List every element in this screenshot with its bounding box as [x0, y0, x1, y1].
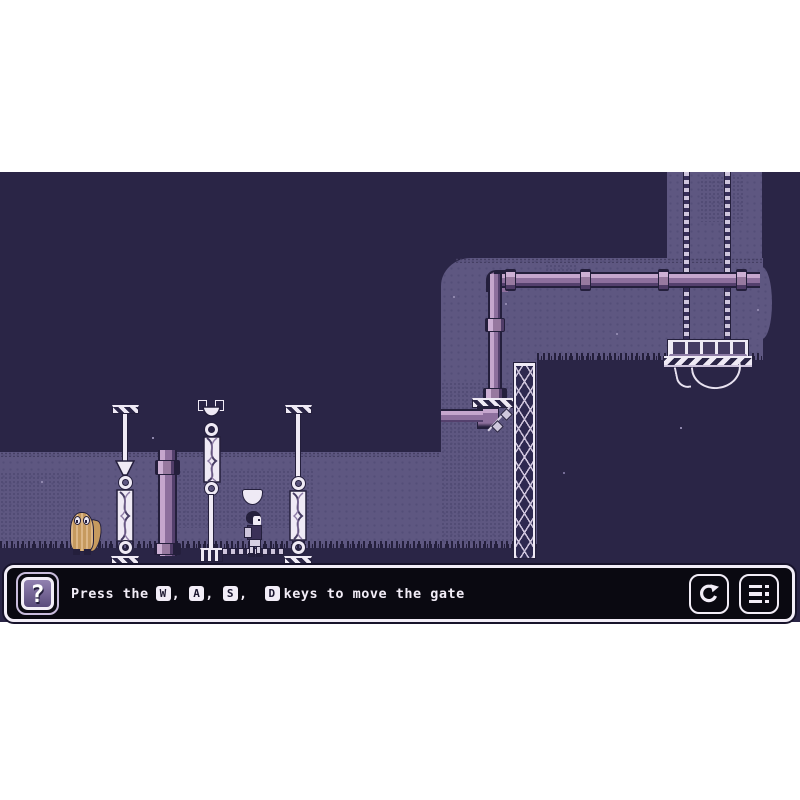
key-badge-a: A	[189, 586, 204, 601]
creature-character	[66, 506, 102, 558]
menu-list-icon	[749, 585, 769, 604]
question-glyph: ?	[30, 580, 44, 608]
comma: ,	[239, 586, 248, 602]
pipe-vertical-main	[488, 274, 502, 390]
chain-left	[684, 172, 689, 344]
pillar3-cap	[285, 405, 312, 414]
pipe-coupling	[580, 269, 591, 291]
speck	[563, 472, 565, 474]
restart-icon	[697, 582, 721, 606]
chain-right	[725, 172, 730, 344]
player-shoe	[248, 553, 255, 557]
pillar1-vine-column	[116, 489, 134, 542]
pillar1-cap	[112, 405, 139, 414]
hint-suffix: keys to move the gate	[284, 586, 465, 602]
creature-foot	[84, 549, 91, 555]
pillar2-ring	[205, 482, 218, 495]
dirt-patch	[700, 176, 745, 222]
speck	[41, 481, 43, 483]
key-badge-s: S	[223, 586, 238, 601]
menu-button[interactable]	[739, 574, 779, 614]
restart-button[interactable]	[689, 574, 729, 614]
creature-pupil	[85, 520, 87, 523]
pillar1-ring	[119, 476, 132, 489]
pillar1-ring	[119, 541, 132, 554]
speck	[757, 309, 759, 311]
pipe-flange	[154, 543, 181, 555]
player-eye	[258, 519, 260, 521]
comma: ,	[172, 586, 181, 602]
speck	[616, 333, 618, 335]
speck	[505, 303, 507, 305]
comma: ,	[205, 586, 214, 602]
pillar3-ring	[292, 541, 305, 554]
pipe-end-cap	[736, 269, 747, 291]
question-mark-icon: ?	[21, 577, 54, 610]
key-badge-d: D	[265, 586, 280, 601]
pipe-coupling	[485, 318, 505, 332]
hint-text: Press the W , A , S , D keys to move the…	[71, 586, 465, 602]
pipe-coupling	[505, 269, 516, 291]
pillar1-rod	[123, 414, 127, 462]
hint-prefix: Press the	[71, 586, 149, 602]
pillar3-rod	[296, 414, 300, 477]
pillar3-base	[284, 556, 312, 565]
key-badge-w: W	[156, 586, 171, 601]
speck	[152, 437, 154, 439]
creature-pupil	[76, 520, 78, 523]
pillar2-base	[200, 548, 223, 562]
pillar1-funnel	[115, 460, 135, 476]
game-viewport[interactable]	[0, 172, 800, 622]
pillar2-ring	[205, 423, 218, 436]
pillar2-rod	[209, 495, 213, 548]
pillar3-ring	[292, 477, 305, 490]
player-character	[244, 511, 266, 557]
pipe-coupling	[155, 460, 180, 475]
player-backpack	[244, 527, 252, 538]
pillar1-base	[111, 556, 139, 565]
dirt-fringe	[455, 258, 763, 263]
pipe-coupling	[658, 269, 669, 291]
page: ? Press the W , A , S , D keys to move t…	[0, 0, 800, 800]
pillar2-vine-column	[203, 436, 221, 483]
pipe-horizontal-main	[494, 272, 760, 288]
pillar2-cup	[202, 406, 221, 421]
lattice-tower	[514, 363, 535, 558]
pipe-horizontal-lower	[441, 409, 483, 422]
player-shoe	[256, 553, 263, 557]
pillar3-vine-column	[289, 490, 307, 541]
creature-foot	[73, 549, 80, 555]
hud-bar: ? Press the W , A , S , D keys to move t…	[4, 565, 795, 622]
gate-rail	[668, 340, 748, 357]
hint-icon-frame: ?	[16, 572, 59, 615]
speck	[680, 427, 682, 429]
speck	[453, 296, 455, 298]
